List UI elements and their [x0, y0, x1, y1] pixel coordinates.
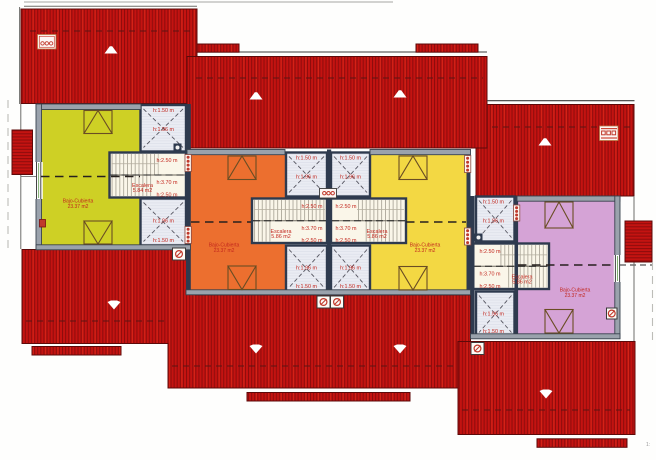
svg-text:h:3.70 m: h:3.70 m: [480, 271, 501, 277]
svg-text:23.37 m2: 23.37 m2: [565, 293, 586, 299]
svg-text:5.86 m2: 5.86 m2: [271, 234, 290, 240]
svg-text:h:1.50 m: h:1.50 m: [296, 156, 317, 162]
svg-text:h:1.50 m: h:1.50 m: [483, 329, 504, 335]
svg-text:h:2.50 m: h:2.50 m: [336, 204, 357, 210]
svg-text:h:1.50 m: h:1.50 m: [340, 284, 361, 290]
svg-text:h:2.50 m: h:2.50 m: [302, 238, 323, 244]
svg-text:h:1.50 m: h:1.50 m: [296, 284, 317, 290]
svg-text:h:1.50 m: h:1.50 m: [340, 156, 361, 162]
svg-text:h:1.50 m: h:1.50 m: [153, 238, 174, 244]
svg-text:h:1.96 m: h:1.96 m: [340, 266, 361, 272]
svg-text:5.86 m2: 5.86 m2: [512, 279, 531, 285]
svg-text:h:1.50 m: h:1.50 m: [483, 200, 504, 206]
svg-text:h:2.50 m: h:2.50 m: [157, 158, 178, 164]
svg-text:h:1.96 m: h:1.96 m: [296, 266, 317, 272]
svg-text:5.84 m2: 5.84 m2: [133, 188, 152, 194]
svg-text:h:1.96 m: h:1.96 m: [296, 175, 317, 181]
svg-text:23.37 m2: 23.37 m2: [415, 248, 436, 254]
svg-text:h:1.96 m: h:1.96 m: [153, 127, 174, 133]
svg-text:h:2.50 m: h:2.50 m: [480, 284, 501, 290]
svg-text:h:1.96 m: h:1.96 m: [340, 175, 361, 181]
svg-text:h:2.50 m: h:2.50 m: [157, 193, 178, 199]
svg-text:h:3.70 m: h:3.70 m: [157, 180, 178, 186]
svg-text:h:3.70 m: h:3.70 m: [336, 226, 357, 232]
svg-text:23.37 m2: 23.37 m2: [68, 204, 89, 210]
svg-text:h:1.50 m: h:1.50 m: [153, 108, 174, 114]
svg-text:23.37 m2: 23.37 m2: [214, 248, 235, 254]
svg-text:h:2.50 m: h:2.50 m: [302, 204, 323, 210]
svg-text:5.86 m2: 5.86 m2: [367, 234, 386, 240]
svg-text:h:1.96 m: h:1.96 m: [483, 219, 504, 225]
svg-text:h:2.50 m: h:2.50 m: [480, 249, 501, 255]
svg-text:h:2.50 m: h:2.50 m: [336, 238, 357, 244]
svg-text:h:1.96 m: h:1.96 m: [483, 312, 504, 318]
svg-text:h:1.96 m: h:1.96 m: [153, 219, 174, 225]
svg-text:h:3.70 m: h:3.70 m: [302, 226, 323, 232]
svg-text:1:: 1:: [646, 442, 650, 448]
